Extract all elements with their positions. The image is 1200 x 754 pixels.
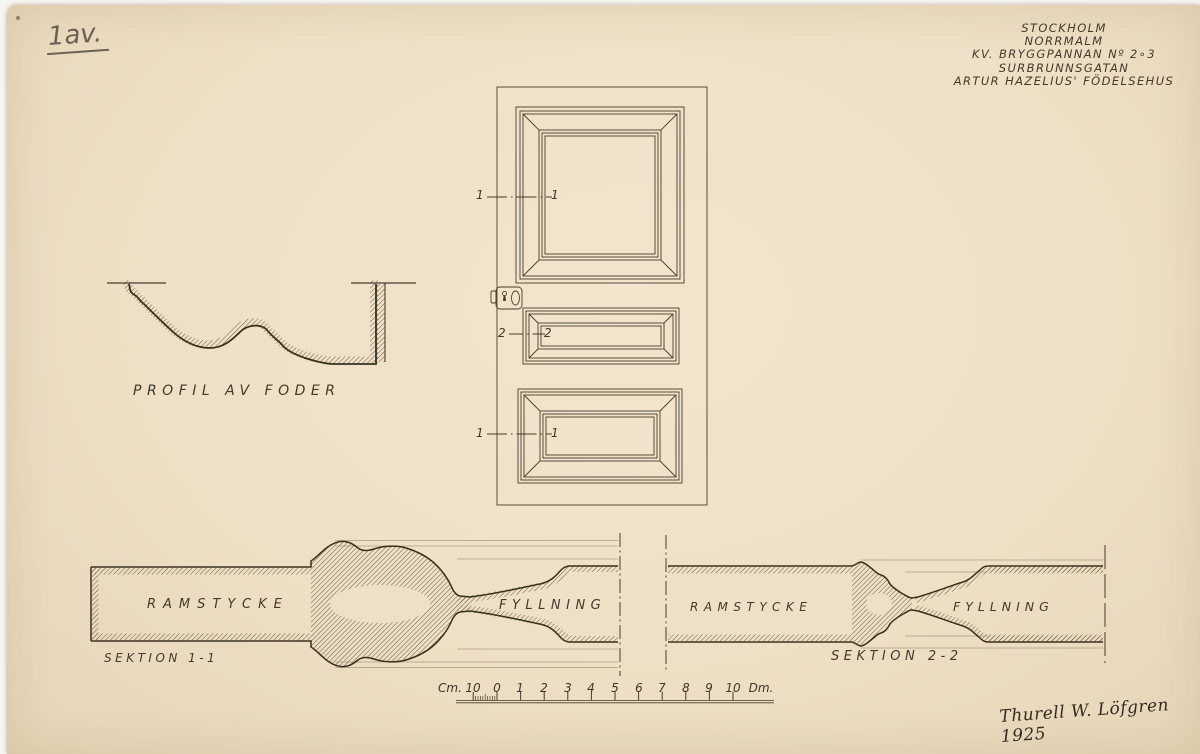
fyllning-label-section1: FYLLNING xyxy=(499,598,606,613)
drawing-linework xyxy=(0,0,1200,754)
scale-mark: 5 xyxy=(611,681,619,695)
scale-mark: 9 xyxy=(705,681,713,695)
scanned-drawing-sheet: 1av. STOCKHOLM NORRMALM KV. BRYGGPANNAN … xyxy=(0,0,1200,754)
scale-mark: 10 xyxy=(725,681,740,695)
scale-mark: 10 xyxy=(465,681,480,695)
ramstycke-label-section2: RAMSTYCKE xyxy=(690,600,812,614)
title-line-street: SURBRUNNSGATAN xyxy=(924,62,1200,75)
section-marker-1-right: 1 xyxy=(551,188,559,202)
section-marker-1b-left: 1 xyxy=(476,426,484,440)
scale-mark: 7 xyxy=(658,681,666,695)
title-block: STOCKHOLM NORRMALM KV. BRYGGPANNAN Nº 2∘… xyxy=(924,22,1200,88)
section1-caption: SEKTION 1-1 xyxy=(104,651,218,665)
section-marker-1b-right: 1 xyxy=(551,426,559,440)
section-marker-2-left: 2 xyxy=(498,326,506,340)
section-marker-2-right: 2 xyxy=(544,326,552,340)
title-line-block: KV. BRYGGPANNAN Nº 2∘3 xyxy=(924,48,1200,61)
sheet-number-note: 1av. xyxy=(45,18,109,55)
scale-mark: 4 xyxy=(587,681,595,695)
door-elevation-drawing xyxy=(487,87,707,505)
title-line-building: ARTUR HAZELIUS' FÖDELSEHUS xyxy=(924,75,1200,88)
section-marker-1-left: 1 xyxy=(476,188,484,202)
door-lock-plate xyxy=(491,287,522,309)
profile-caption: PROFIL AV FODER xyxy=(133,383,340,399)
scale-unit-dm: Dm. xyxy=(749,681,774,695)
scale-mark: 6 xyxy=(635,681,643,695)
scale-mark: 3 xyxy=(564,681,572,695)
scale-mark: 1 xyxy=(516,681,524,695)
scale-mark: 0 xyxy=(493,681,501,695)
scale-mark: 8 xyxy=(682,681,690,695)
section2-caption: SEKTION 2-2 xyxy=(831,649,963,664)
ramstycke-label-section1: RAMSTYCKE xyxy=(147,597,289,612)
scale-unit-cm: Cm. xyxy=(438,681,462,695)
fyllning-label-section2: FYLLNING xyxy=(953,599,1054,614)
scale-mark: 2 xyxy=(540,681,548,695)
casing-profile-drawing xyxy=(107,281,416,365)
